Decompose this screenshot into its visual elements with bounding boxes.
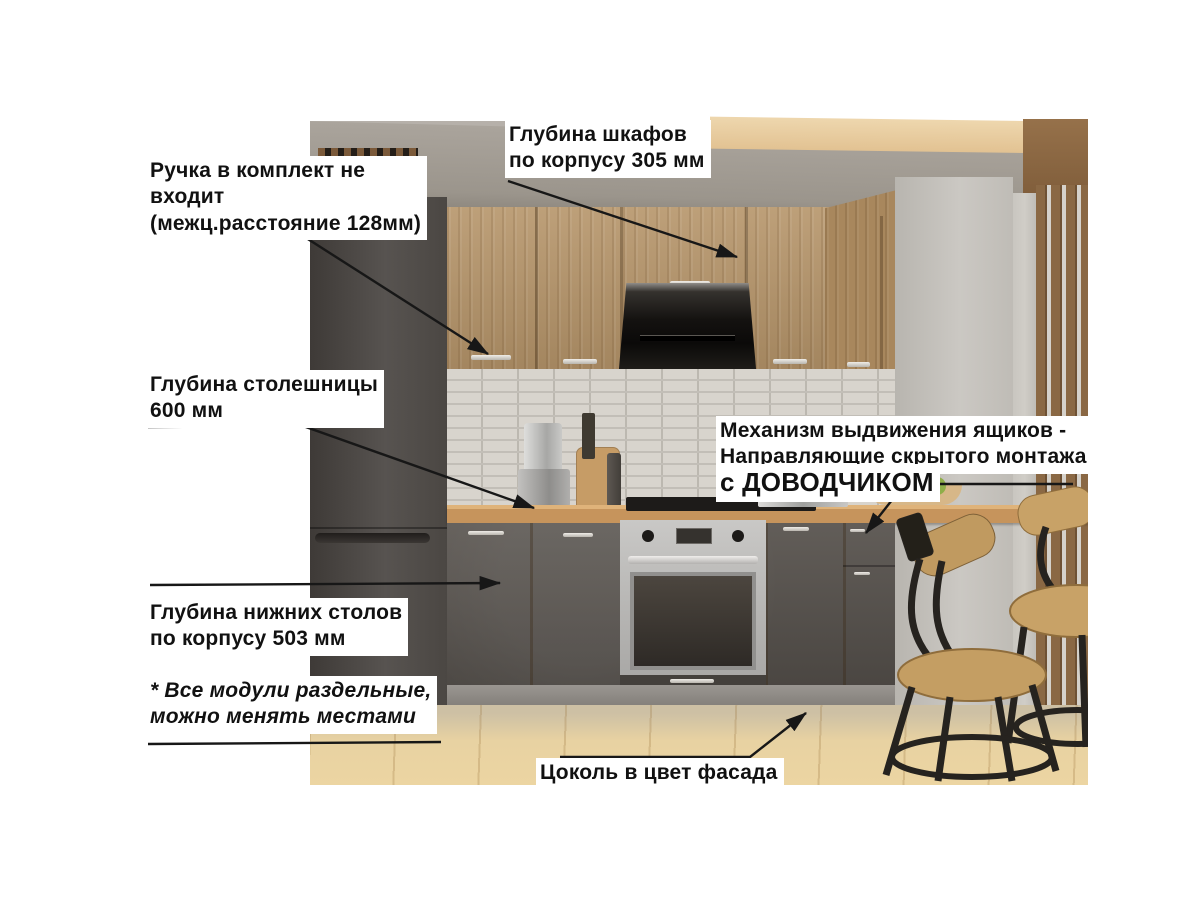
arrow-handle-note <box>148 234 488 354</box>
label-soft-close: с ДОВОДЧИКОМ <box>716 464 940 502</box>
arrow-plinth <box>560 713 806 757</box>
label-handle-note: Ручка в комплект не входит (межц.расстоя… <box>146 156 427 240</box>
label-modules-note: * Все модули раздельные, можно менять ме… <box>146 676 437 734</box>
arrow-cabinet-depth <box>508 181 737 257</box>
line-modules-note <box>148 742 441 744</box>
label-plinth: Цоколь в цвет фасада <box>536 758 784 789</box>
arrow-base-depth <box>150 583 500 585</box>
label-cabinet-depth: Глубина шкафов по корпусу 305 мм <box>505 120 711 178</box>
arrow-countertop-depth <box>148 426 534 508</box>
label-base-depth: Глубина нижних столов по корпусу 503 мм <box>146 598 408 656</box>
label-countertop-depth: Глубина столешницы 600 мм <box>146 370 384 428</box>
annotated-kitchen-advert: Глубина шкафов по корпусу 305 мм Ручка в… <box>0 0 1200 900</box>
